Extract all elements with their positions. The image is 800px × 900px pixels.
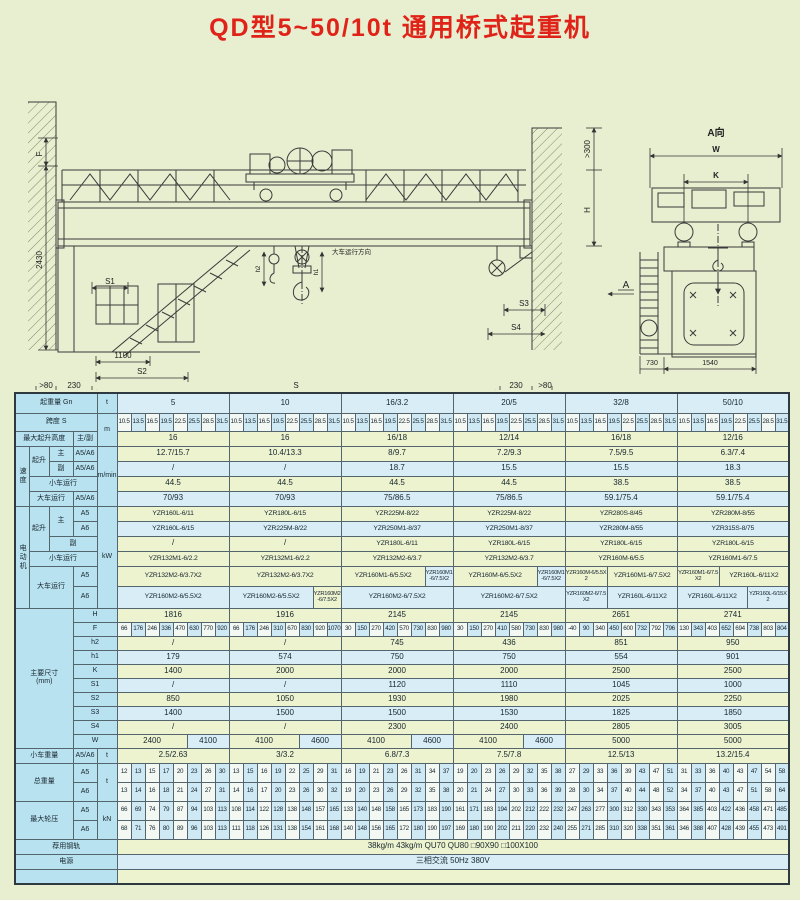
data-cell: 364 — [677, 801, 691, 820]
row-label-cell: A5 — [73, 801, 97, 820]
data-cell: 18.7 — [341, 461, 453, 476]
data-cell: 2000 — [341, 664, 453, 678]
data-cell: 16 — [117, 431, 229, 446]
data-cell: 22.5 — [621, 413, 635, 431]
data-cell: 31 — [677, 763, 691, 782]
data-cell: 13 — [131, 763, 145, 782]
data-cell: 19.5 — [719, 413, 733, 431]
data-cell: 830 — [537, 622, 551, 636]
dim-gt80-right: >80 — [538, 381, 552, 390]
dim-230-left: 230 — [67, 381, 81, 390]
data-cell: 28.5 — [201, 413, 215, 431]
data-cell: 570 — [397, 622, 411, 636]
data-cell: YZR160M2-6/5.5X2 — [117, 586, 229, 608]
data-cell: 25.5 — [523, 413, 537, 431]
data-cell: 792 — [649, 622, 663, 636]
data-cell: YZR180L-6/15 — [565, 536, 677, 551]
data-cell: 28.5 — [649, 413, 663, 431]
data-cell: 29 — [509, 763, 523, 782]
data-cell: 30 — [509, 782, 523, 801]
row-label-cell: 速度 — [15, 446, 29, 506]
data-cell: 140 — [355, 801, 369, 820]
data-cell: 39 — [551, 782, 565, 801]
data-cell: 169 — [453, 820, 467, 839]
data-cell: 343 — [691, 622, 705, 636]
data-cell: YZR132M2-6/3.7X2 — [229, 566, 341, 586]
data-cell: 2400 — [453, 720, 565, 734]
data-cell: 58 — [775, 763, 789, 782]
data-cell: 66 — [229, 622, 243, 636]
data-cell: 190 — [425, 820, 439, 839]
data-cell: 246 — [145, 622, 159, 636]
data-cell: 19.5 — [383, 413, 397, 431]
data-cell: 19 — [341, 782, 355, 801]
data-cell: 30 — [215, 763, 229, 782]
data-cell: 68 — [117, 820, 131, 839]
data-cell: 10.4/13.3 — [229, 446, 341, 461]
data-cell: 76 — [145, 820, 159, 839]
data-cell: 15.5 — [565, 461, 677, 476]
data-cell: 403 — [705, 622, 719, 636]
data-cell: 21 — [467, 782, 481, 801]
row-label-cell: 电动机 — [15, 506, 29, 608]
data-cell: 96 — [187, 820, 201, 839]
data-cell: 18.3 — [677, 461, 789, 476]
data-cell: 580 — [509, 622, 523, 636]
page-title: QD型5~50/10t 通用桥式起重机 — [0, 0, 800, 42]
data-cell: 1400 — [117, 664, 229, 678]
data-cell: YZR160M2-6/5.5X2 — [229, 586, 313, 608]
data-cell: 803 — [761, 622, 775, 636]
row-label-cell: t — [97, 763, 117, 801]
data-cell: 148 — [299, 801, 313, 820]
data-cell: YZR160M2-6/7.5X2 — [313, 586, 341, 608]
data-cell: 161 — [453, 801, 467, 820]
data-cell: 738 — [747, 622, 761, 636]
data-cell: 247 — [565, 801, 579, 820]
data-cell: 980 — [551, 622, 565, 636]
dim-w: W — [712, 145, 720, 154]
data-cell: 950 — [677, 636, 789, 650]
data-cell: 12/14 — [453, 431, 565, 446]
data-cell: 71 — [131, 820, 145, 839]
data-cell: 33 — [691, 763, 705, 782]
row-label-cell: m/min — [97, 446, 117, 506]
data-cell: 8/9.7 — [341, 446, 453, 461]
data-cell: 1530 — [453, 706, 565, 720]
aux-hook — [269, 246, 279, 283]
data-cell: 27 — [201, 782, 215, 801]
data-cell: 403 — [705, 801, 719, 820]
data-cell: 13.2/15.4 — [677, 748, 789, 763]
data-cell: 59.1/75.4 — [677, 491, 789, 506]
data-cell: 428 — [719, 820, 733, 839]
data-cell: 920 — [313, 622, 327, 636]
data-cell: 180 — [411, 820, 425, 839]
data-cell: 26 — [495, 763, 509, 782]
data-cell: 31 — [215, 782, 229, 801]
data-cell — [117, 869, 789, 884]
data-cell: 150 — [355, 622, 369, 636]
dim-k: K — [713, 171, 719, 180]
data-cell: 1980 — [453, 692, 565, 706]
data-cell: 131 — [271, 820, 285, 839]
data-cell: 38.5 — [565, 476, 677, 491]
row-label-cell: 主/副 — [73, 431, 97, 446]
data-cell: 340 — [593, 622, 607, 636]
data-cell: 13.5 — [355, 413, 369, 431]
data-cell: / — [117, 461, 229, 476]
data-cell: 148 — [369, 801, 383, 820]
data-cell: 90 — [579, 622, 593, 636]
spec-table-body: 起重量 Gnt51016/3.220/532/850/10跨度 Sm10.513… — [15, 393, 789, 884]
data-cell: 70/93 — [229, 491, 341, 506]
data-cell: 470 — [173, 622, 187, 636]
data-cell: 179 — [117, 650, 229, 664]
data-cell: 7.5/7.8 — [453, 748, 565, 763]
row-label-cell: m — [97, 413, 117, 446]
dim-h: H — [583, 207, 592, 213]
data-cell: 13.5 — [243, 413, 257, 431]
data-cell: 2500 — [677, 664, 789, 678]
dim-s3: S3 — [519, 299, 529, 308]
data-cell: 43 — [733, 763, 747, 782]
data-cell: 34 — [677, 782, 691, 801]
row-label-cell: 最大起升高度 — [15, 431, 73, 446]
row-label-cell: 大车运行 — [29, 566, 73, 608]
data-cell: 4100 — [453, 734, 523, 748]
data-cell: 10.5 — [341, 413, 355, 431]
row-label-cell: 副 — [49, 461, 73, 476]
data-cell: 89 — [173, 820, 187, 839]
row-label-cell: kN — [97, 801, 117, 839]
data-cell: 38 — [439, 782, 453, 801]
data-cell: 436 — [453, 636, 565, 650]
data-cell: 44.5 — [453, 476, 565, 491]
data-cell: 173 — [411, 801, 425, 820]
data-cell: 14 — [131, 782, 145, 801]
data-cell: 32 — [411, 782, 425, 801]
data-cell: 25 — [299, 763, 313, 782]
data-cell: 23 — [187, 763, 201, 782]
data-cell: -40 — [565, 622, 579, 636]
data-cell: 28.5 — [761, 413, 775, 431]
row-label-cell: 小车重量 — [15, 748, 73, 763]
data-cell: YZR160M-6/5.5 — [565, 551, 677, 566]
data-cell: 312 — [621, 801, 635, 820]
data-cell: 10.5 — [229, 413, 243, 431]
row-label-cell: 小车运行 — [29, 551, 97, 566]
row-label-cell: 主要尺寸 (mm) — [15, 608, 73, 748]
data-cell: 103 — [201, 820, 215, 839]
data-cell: 1825 — [565, 706, 677, 720]
data-cell: 29 — [397, 782, 411, 801]
dim-s2: S2 — [137, 367, 147, 376]
data-cell: YZR132M1-6/2.2 — [229, 551, 341, 566]
data-cell: 12.5/13 — [565, 748, 677, 763]
data-cell: YZR160M2-6/7.5X2 — [565, 586, 607, 608]
data-cell: 47 — [733, 782, 747, 801]
data-cell: YZR160M2-6/7.5X2 — [341, 586, 453, 608]
data-cell: 27 — [565, 763, 579, 782]
data-cell: 94 — [187, 801, 201, 820]
data-cell: 2025 — [565, 692, 677, 706]
data-cell: 600 — [621, 622, 635, 636]
data-cell: 15 — [145, 763, 159, 782]
data-cell: YZR180L-6/15 — [677, 536, 789, 551]
right-end-pulley — [489, 246, 532, 276]
data-cell: / — [117, 720, 229, 734]
data-cell: 385 — [691, 801, 705, 820]
data-cell: 34 — [593, 782, 607, 801]
data-cell: 750 — [341, 650, 453, 664]
row-label-cell: t — [97, 748, 117, 763]
data-cell: 156 — [369, 820, 383, 839]
row-label-cell: 副 — [49, 536, 97, 551]
data-cell: 732 — [635, 622, 649, 636]
walkway-railing — [62, 170, 526, 202]
data-cell: 330 — [635, 801, 649, 820]
row-label-cell: S2 — [73, 692, 117, 706]
data-cell: 69 — [131, 801, 145, 820]
data-cell: 36 — [705, 763, 719, 782]
data-cell: 17 — [257, 782, 271, 801]
data-cell: 172 — [397, 820, 411, 839]
data-cell: 2300 — [341, 720, 453, 734]
data-cell: 16.5 — [705, 413, 719, 431]
data-cell: 26 — [383, 782, 397, 801]
data-cell: 194 — [495, 801, 509, 820]
data-cell: YZR160L-6/15X2 — [747, 586, 789, 608]
data-cell: 16 — [243, 782, 257, 801]
data-cell: 2145 — [341, 608, 453, 622]
data-cell: 148 — [355, 820, 369, 839]
row-label-cell: 起重量 Gn — [15, 393, 97, 413]
dim-h1: h1 — [314, 268, 320, 275]
data-cell: 28.5 — [313, 413, 327, 431]
dim-f: F — [35, 151, 44, 156]
data-cell: 232 — [551, 801, 565, 820]
data-cell: YZR280S-8/45 — [565, 506, 677, 521]
data-cell: 75/86.5 — [453, 491, 565, 506]
data-cell: 351 — [649, 820, 663, 839]
row-label-cell: h1 — [73, 650, 117, 664]
data-cell: 133 — [341, 801, 355, 820]
row-label-cell: 小车运行 — [29, 476, 97, 491]
row-label-cell — [15, 869, 117, 884]
dim-1540: 1540 — [702, 360, 718, 367]
data-cell: 51 — [747, 782, 761, 801]
row-label-cell: K — [73, 664, 117, 678]
data-cell: YZR225M-8/22 — [229, 521, 341, 536]
data-cell: 80 — [159, 820, 173, 839]
data-cell: 18 — [159, 782, 173, 801]
data-cell: 122 — [257, 801, 271, 820]
data-cell: 183 — [481, 801, 495, 820]
data-cell: YZR160M1-6/7.5X2 — [677, 566, 719, 586]
data-cell: 410 — [495, 622, 509, 636]
data-cell: 5000 — [565, 734, 677, 748]
data-cell: 336 — [159, 622, 173, 636]
data-cell: 770 — [201, 622, 215, 636]
data-cell: 730 — [523, 622, 537, 636]
data-cell: / — [229, 720, 341, 734]
data-cell: 87 — [173, 801, 187, 820]
data-cell: 32 — [523, 763, 537, 782]
data-cell: YZR280M-8/55 — [677, 506, 789, 521]
data-cell: 4100 — [341, 734, 411, 748]
data-cell: 22.5 — [397, 413, 411, 431]
data-cell: 13 — [117, 782, 131, 801]
data-cell: 58 — [761, 782, 775, 801]
data-cell: 920 — [215, 622, 229, 636]
data-cell: 50/10 — [677, 393, 789, 413]
data-cell: 26 — [397, 763, 411, 782]
data-cell: 36 — [537, 782, 551, 801]
data-cell: 34 — [425, 763, 439, 782]
data-cell: 26 — [299, 782, 313, 801]
data-cell: 30 — [453, 622, 467, 636]
dim-730: 730 — [646, 360, 658, 367]
data-cell: 183 — [425, 801, 439, 820]
data-cell: 2500 — [565, 664, 677, 678]
data-cell: 13.5 — [579, 413, 593, 431]
data-cell: 33 — [593, 763, 607, 782]
data-cell: 31.5 — [215, 413, 229, 431]
data-cell: 40 — [621, 782, 635, 801]
data-cell: 220 — [523, 820, 537, 839]
right-wall-hatch — [532, 128, 562, 350]
data-cell: 7.2/9.3 — [453, 446, 565, 461]
data-cell: / — [229, 461, 341, 476]
data-cell: 16 — [145, 782, 159, 801]
row-label-cell: S1 — [73, 678, 117, 692]
data-cell: 750 — [453, 650, 565, 664]
data-cell: 31.5 — [327, 413, 341, 431]
dim-230-right: 230 — [509, 381, 523, 390]
data-cell: 22.5 — [285, 413, 299, 431]
row-label-cell: 起升 — [29, 506, 49, 551]
data-cell: 161 — [313, 820, 327, 839]
data-cell: 165 — [397, 801, 411, 820]
left-wall-hatch — [28, 102, 56, 350]
data-cell: 17 — [159, 763, 173, 782]
data-cell: YZR160L-6/11X2 — [719, 566, 789, 586]
travel-direction-note: 大车运行方向 — [332, 247, 371, 256]
dim-gt80-left: >80 — [39, 381, 53, 390]
data-cell: 202 — [495, 820, 509, 839]
data-cell: 36 — [607, 763, 621, 782]
data-cell: 20 — [467, 763, 481, 782]
end-view-title: A向 — [707, 126, 724, 139]
data-cell: 346 — [677, 820, 691, 839]
data-cell: YZR160M1-6/5.5X2 — [341, 566, 425, 586]
data-cell: 19.5 — [159, 413, 173, 431]
data-cell: 1916 — [229, 608, 341, 622]
data-cell: YZR160M1-6/7.5X2 — [425, 566, 453, 586]
data-cell: 168 — [327, 820, 341, 839]
data-cell: 16 — [229, 431, 341, 446]
data-cell: 59.1/75.4 — [565, 491, 677, 506]
data-cell: 35 — [537, 763, 551, 782]
data-cell: 485 — [775, 801, 789, 820]
data-cell: 54 — [761, 763, 775, 782]
data-cell: 22.5 — [733, 413, 747, 431]
data-cell: 1400 — [117, 706, 229, 720]
data-cell: 1500 — [229, 706, 341, 720]
data-cell: 232 — [537, 820, 551, 839]
row-label-cell: A5 — [73, 506, 97, 521]
data-cell: 140 — [341, 820, 355, 839]
end-view-trolley — [652, 188, 780, 247]
data-cell: / — [229, 636, 341, 650]
data-cell: 473 — [761, 820, 775, 839]
data-cell: YZR225M-8/22 — [341, 506, 453, 521]
data-cell: 10 — [229, 393, 341, 413]
data-cell: YZR180L-6/15 — [453, 536, 565, 551]
data-cell: YZR160M1-6/7.5X2 — [537, 566, 565, 586]
data-cell: 32/8 — [565, 393, 677, 413]
data-cell: YZR180L-6/15 — [229, 506, 341, 521]
data-cell: 31.5 — [551, 413, 565, 431]
data-cell: 21 — [173, 782, 187, 801]
data-cell: 113 — [215, 820, 229, 839]
data-cell: 150 — [467, 622, 481, 636]
data-cell: 165 — [383, 820, 397, 839]
data-cell: YZR160M1-6/7.5X2 — [607, 566, 677, 586]
data-cell: YZR160M2-6/7.5X2 — [453, 586, 565, 608]
data-cell: 44.5 — [229, 476, 341, 491]
data-cell: 16 — [257, 763, 271, 782]
data-cell: 130 — [677, 622, 691, 636]
data-cell: 43 — [635, 763, 649, 782]
data-cell: 40 — [705, 782, 719, 801]
data-cell: 1930 — [341, 692, 453, 706]
data-cell: 7.5/9.5 — [565, 446, 677, 461]
row-label-cell: 电源 — [15, 854, 117, 869]
data-cell: 13.5 — [691, 413, 705, 431]
data-cell: 5000 — [677, 734, 789, 748]
data-cell: 23 — [383, 763, 397, 782]
data-cell: 25.5 — [187, 413, 201, 431]
data-cell: 16/18 — [565, 431, 677, 446]
data-cell: 13.5 — [467, 413, 481, 431]
data-cell: 212 — [523, 801, 537, 820]
data-cell: 458 — [747, 801, 761, 820]
data-cell: 44 — [635, 782, 649, 801]
data-cell: 三相交流 50Hz 380V — [117, 854, 789, 869]
data-cell: / — [117, 678, 229, 692]
data-cell: 12 — [117, 763, 131, 782]
data-cell: 26 — [201, 763, 215, 782]
data-cell: 28 — [565, 782, 579, 801]
data-cell: 1816 — [117, 608, 229, 622]
row-label-cell: S4 — [73, 720, 117, 734]
data-cell: 33 — [523, 782, 537, 801]
data-cell: 19.5 — [607, 413, 621, 431]
data-cell: 64 — [775, 782, 789, 801]
data-cell: 190 — [481, 820, 495, 839]
data-cell: 19 — [271, 763, 285, 782]
data-cell: 165 — [327, 801, 341, 820]
data-cell: 114 — [243, 801, 257, 820]
data-cell: 25.5 — [635, 413, 649, 431]
row-label-cell: 主 — [49, 506, 73, 536]
data-cell: 47 — [747, 763, 761, 782]
data-cell: 4600 — [523, 734, 565, 748]
data-cell: 39 — [621, 763, 635, 782]
data-cell: 694 — [733, 622, 747, 636]
